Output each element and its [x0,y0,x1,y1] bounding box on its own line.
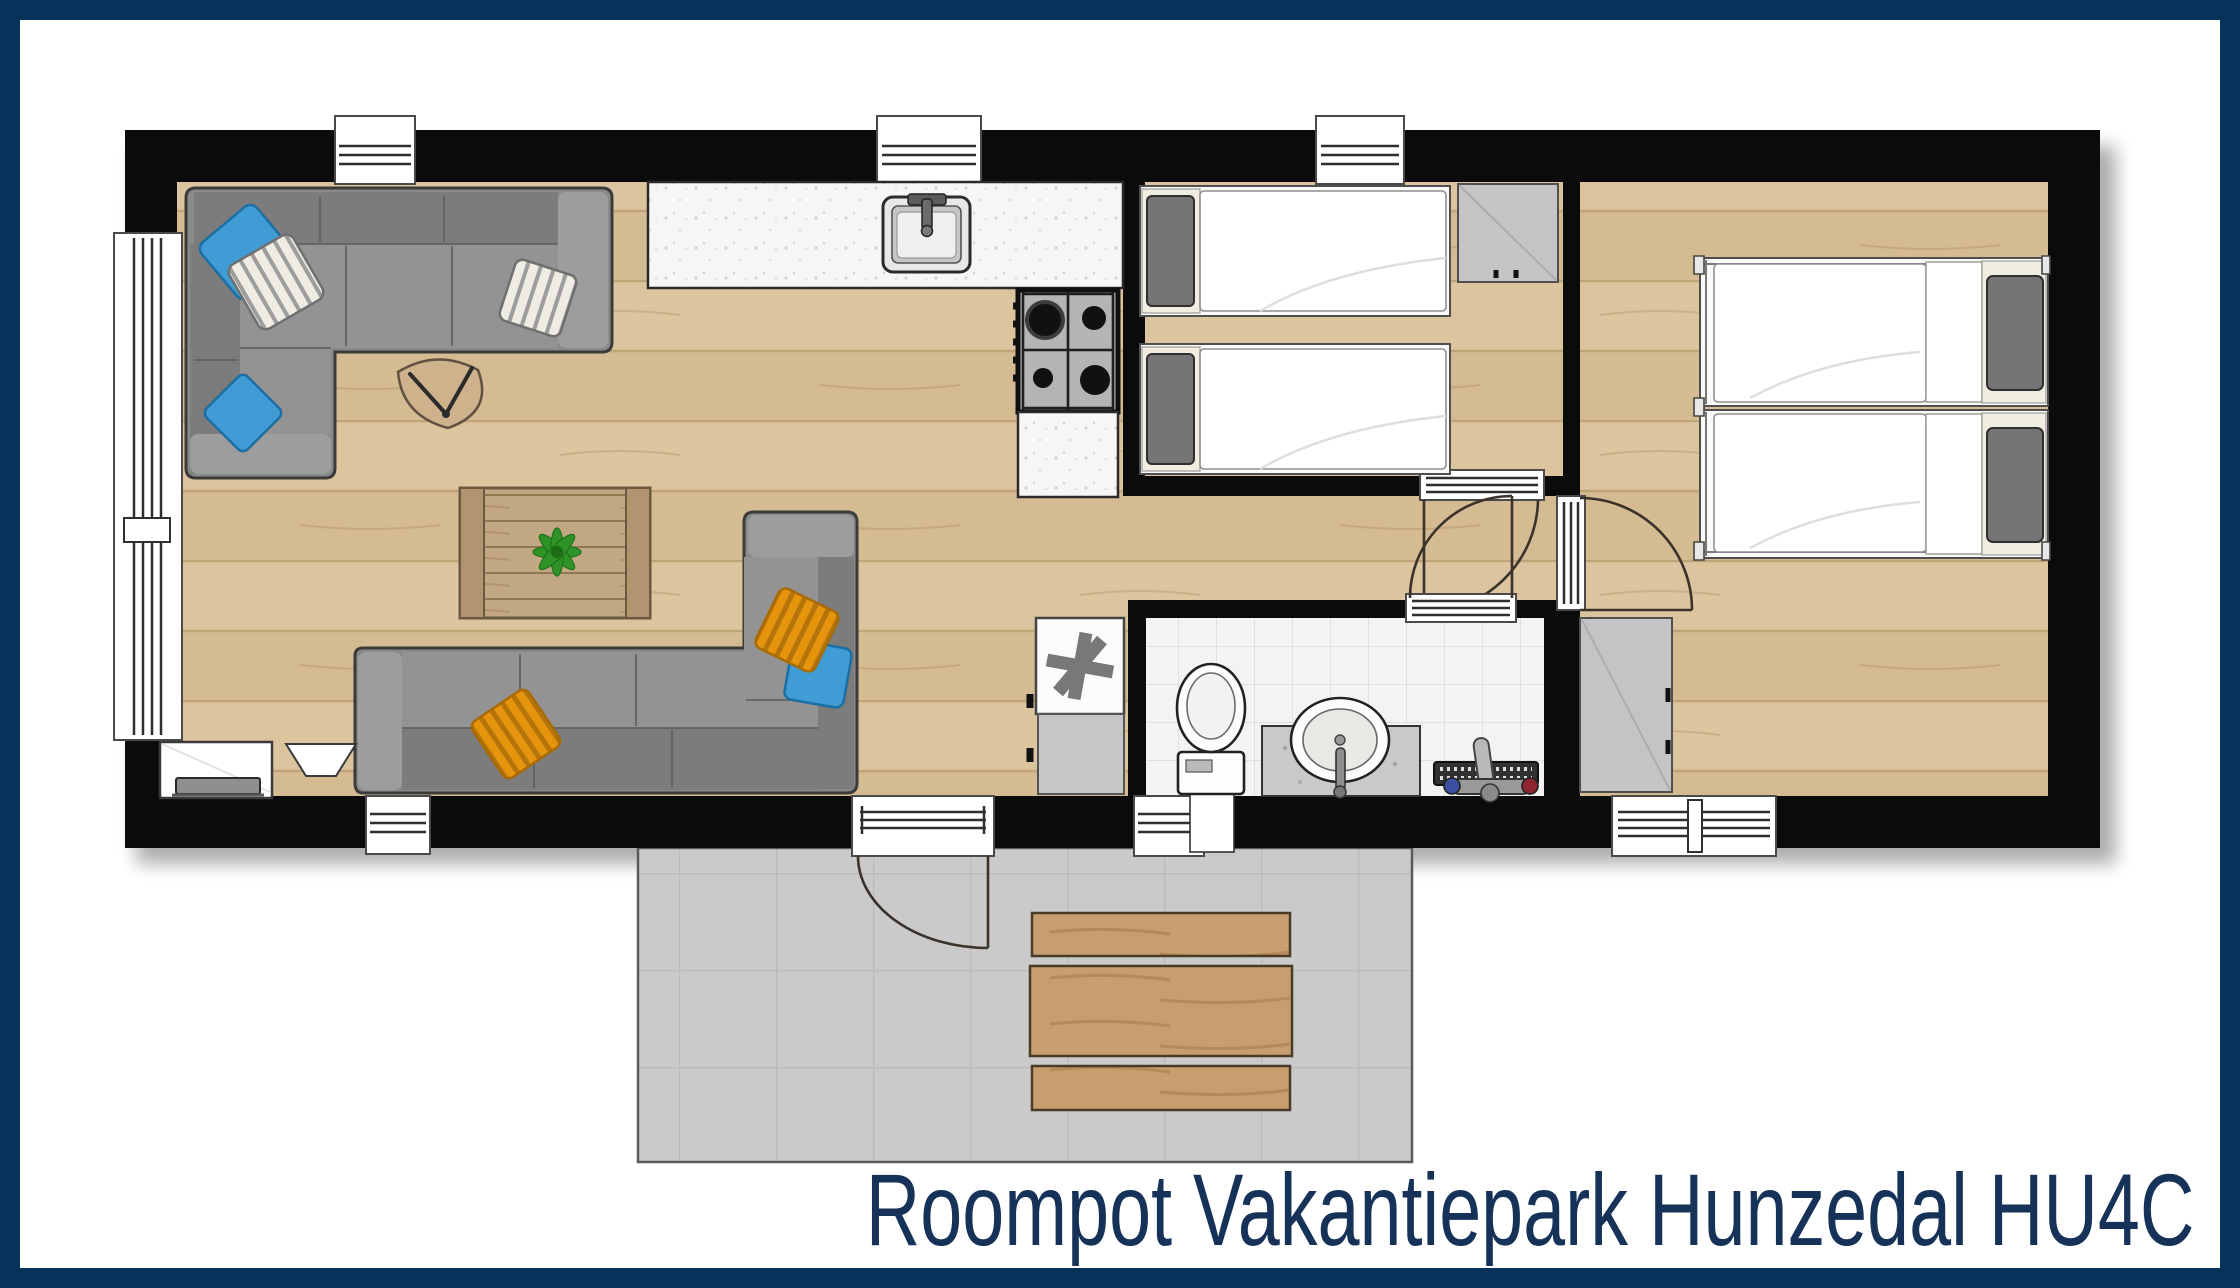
plan-title: Roompot Vakantiepark Hunzedal HU4C [865,1157,2194,1264]
wall-bathroom-right [1544,600,1580,796]
burner-small-2 [1033,368,1053,388]
plant-icon [533,528,581,576]
floorplan-page: Roompot Vakantiepark Hunzedal HU4C [0,0,2240,1288]
window-top-kitchen [877,116,981,184]
bed-single-2 [1140,344,1450,474]
bedroom1-wardrobe [1580,618,1672,792]
window-bedroom1 [1612,796,1776,856]
bed-double-bottom [1700,410,2048,558]
utility-cabinet [1038,714,1124,794]
window-left-living [114,233,182,740]
sink-faucet-icon [1336,748,1345,790]
picnic-table-top [1030,966,1292,1056]
burner-small-1 [1082,306,1106,330]
kitchen-counter-lower [1018,412,1118,497]
window-top-living [335,116,415,184]
stove [1013,290,1118,412]
picnic-table [1030,913,1292,1110]
utility-heater [1030,618,1124,794]
cold-tap-icon [1444,778,1460,794]
bed-single-1 [1140,186,1450,316]
tv-icon [176,778,260,794]
burner-large-2 [1080,365,1110,395]
wall-bedrooms-divider [1563,182,1580,496]
wall-right [2048,130,2100,848]
coffee-table [460,488,650,618]
window-top-bedroom2 [1316,116,1404,184]
terrace [638,848,1412,1162]
bedroom2-closet [1458,184,1558,282]
floorplan-drawing [0,0,2240,1288]
hot-tap-icon [1522,778,1538,794]
wall-top [125,130,2100,182]
burner-large-1 [1027,302,1063,338]
wall-bathroom-left [1128,600,1146,796]
kitchen-sink [883,194,970,272]
window-bottom-living [366,796,430,854]
picnic-bench-bottom [1032,1066,1290,1110]
picnic-bench-top [1032,913,1290,956]
bed-double-top [1700,258,2048,406]
